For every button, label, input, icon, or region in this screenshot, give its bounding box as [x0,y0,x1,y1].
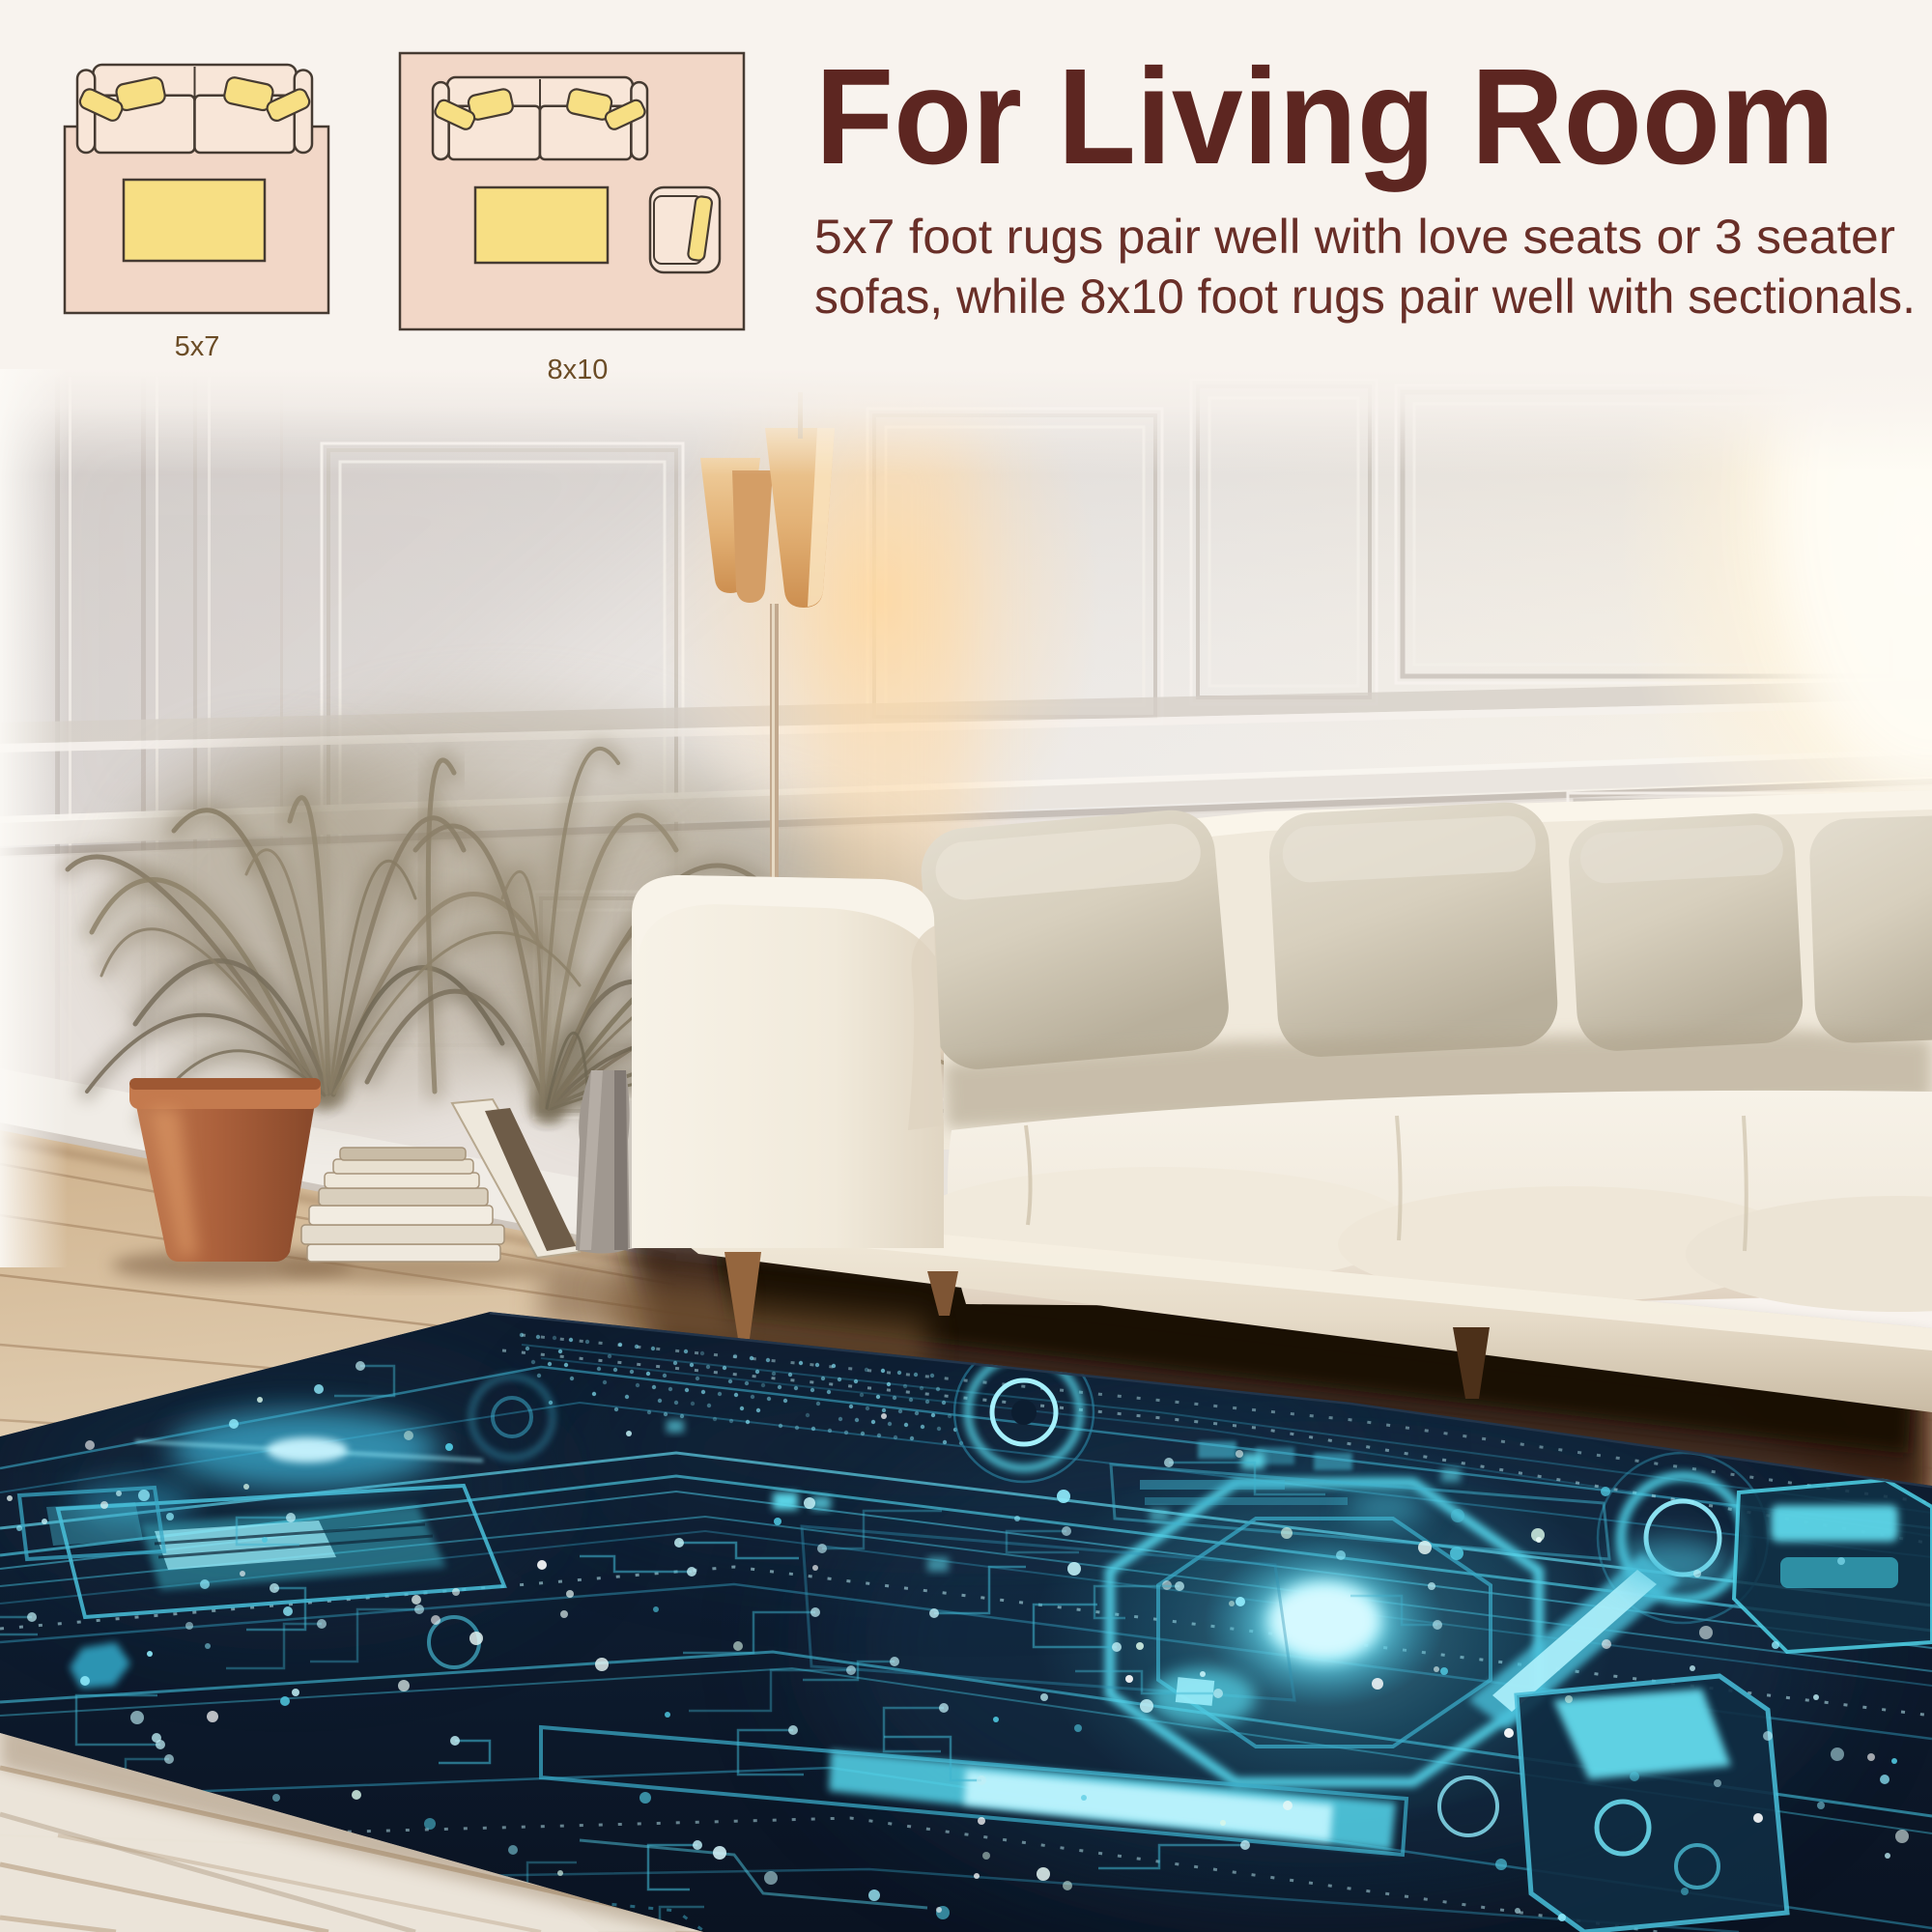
svg-text:sofas, while 8x10 foot rugs pa: sofas, while 8x10 foot rugs pair well wi… [814,270,1916,324]
svg-text:8x10: 8x10 [548,355,609,385]
svg-text:5x7: 5x7 [175,331,220,362]
svg-text:5x7 foot rugs pair well with l: 5x7 foot rugs pair well with love seats … [814,210,1895,264]
svg-text:For Living Room: For Living Room [815,40,1834,192]
